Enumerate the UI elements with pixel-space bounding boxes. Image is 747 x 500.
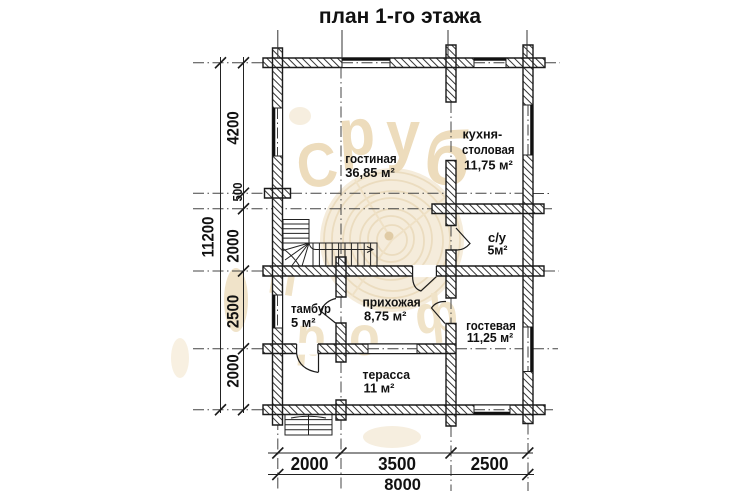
svg-text:5м²: 5м²	[487, 243, 507, 257]
svg-text:2000: 2000	[225, 229, 243, 262]
svg-text:кухня-: кухня-	[463, 126, 503, 141]
svg-text:500: 500	[230, 182, 245, 201]
svg-text:5 м²: 5 м²	[291, 315, 316, 330]
svg-text:3500: 3500	[378, 453, 416, 474]
svg-text:36,85 м²: 36,85 м²	[345, 165, 395, 180]
svg-text:11,25 м²: 11,25 м²	[467, 331, 513, 345]
svg-text:8000: 8000	[384, 476, 421, 494]
svg-text:гостиная: гостиная	[345, 151, 397, 166]
svg-text:11200: 11200	[200, 217, 218, 258]
svg-text:2000: 2000	[225, 354, 243, 387]
svg-text:8,75 м²: 8,75 м²	[364, 308, 407, 323]
svg-text:столовая: столовая	[462, 142, 515, 157]
svg-text:2500: 2500	[225, 295, 243, 328]
svg-text:прихожая: прихожая	[363, 295, 421, 309]
svg-text:2500: 2500	[471, 453, 509, 474]
svg-text:2000: 2000	[291, 453, 329, 474]
svg-text:4200: 4200	[225, 111, 243, 144]
svg-text:план 1-го этажа: план 1-го этажа	[319, 5, 481, 28]
svg-text:11 м²: 11 м²	[364, 380, 396, 395]
svg-text:С: С	[292, 129, 341, 202]
svg-text:11,75 м²: 11,75 м²	[464, 157, 514, 172]
